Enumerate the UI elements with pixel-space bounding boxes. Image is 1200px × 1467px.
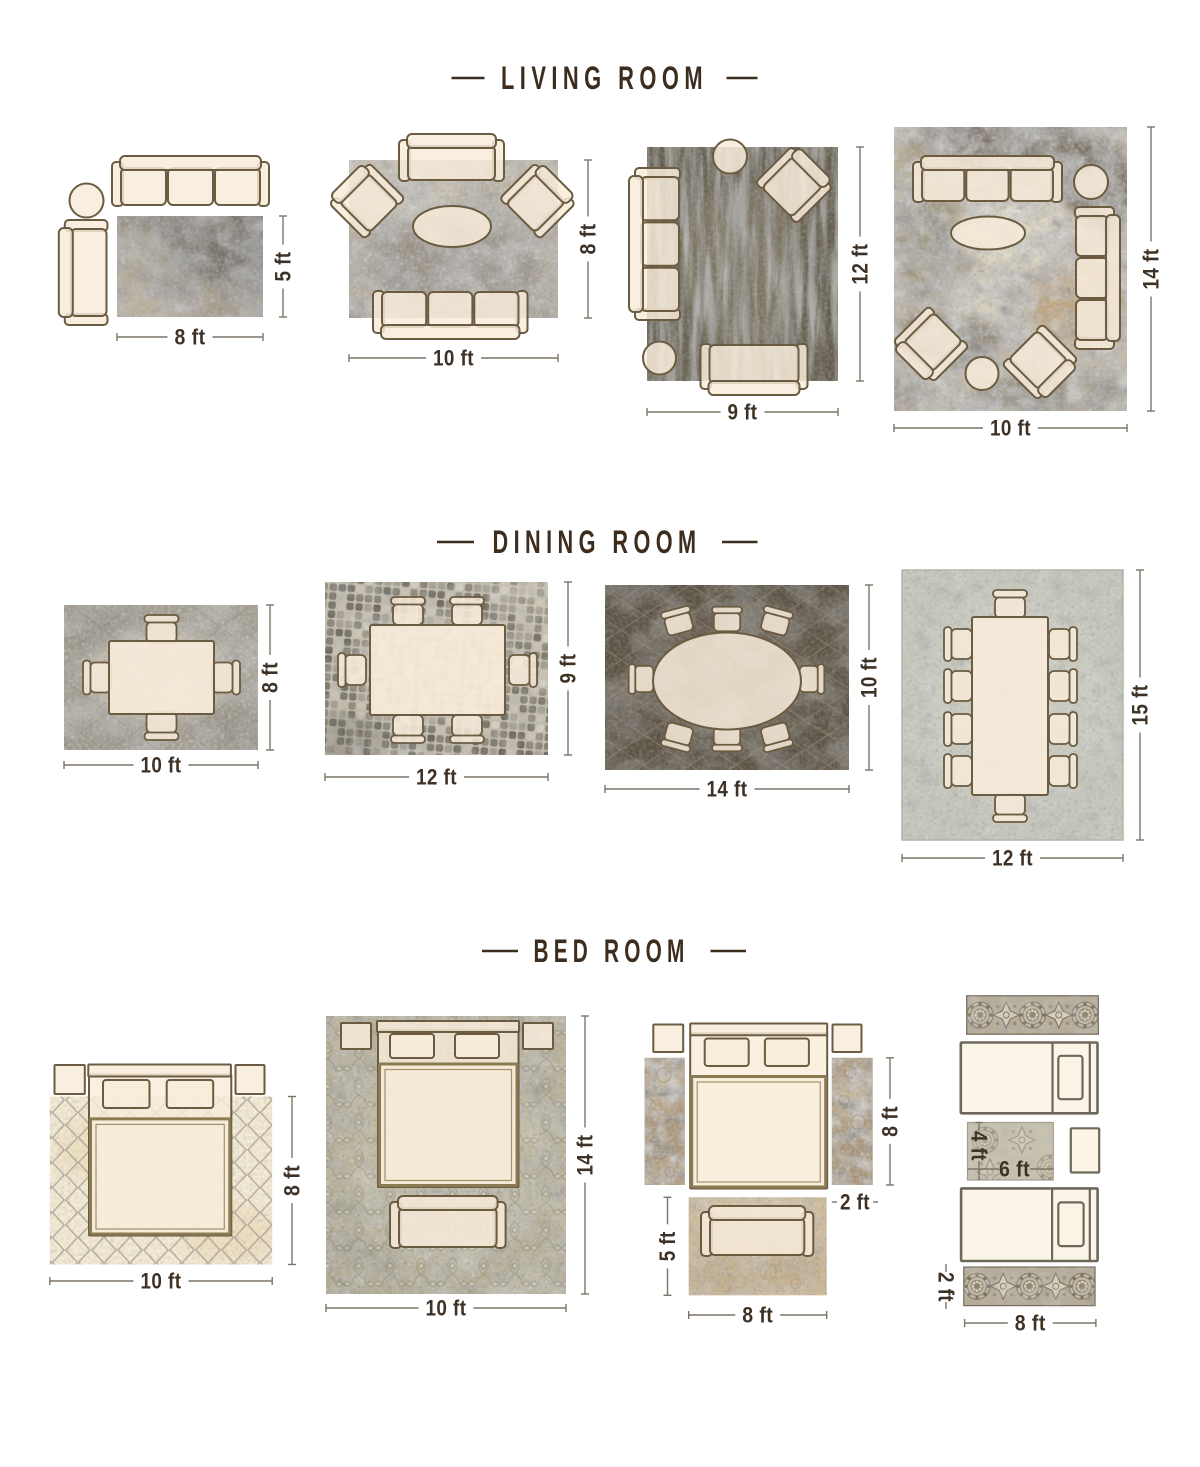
svg-text:DINING ROOM: DINING ROOM (493, 524, 702, 560)
svg-text:2 ft: 2 ft (934, 1272, 959, 1302)
svg-text:15 ft: 15 ft (1128, 684, 1153, 725)
svg-text:9 ft: 9 ft (728, 400, 758, 425)
svg-text:8 ft: 8 ft (742, 1303, 773, 1328)
svg-text:10 ft: 10 ft (141, 753, 182, 778)
svg-text:12 ft: 12 ft (848, 243, 873, 284)
svg-text:6 ft: 6 ft (999, 1157, 1030, 1182)
svg-text:12 ft: 12 ft (416, 765, 457, 790)
svg-text:10 ft: 10 ft (141, 1269, 182, 1294)
svg-text:8 ft: 8 ft (878, 1106, 903, 1137)
svg-text:8 ft: 8 ft (280, 1165, 305, 1196)
svg-text:4 ft: 4 ft (967, 1131, 992, 1161)
svg-text:8 ft: 8 ft (258, 662, 283, 693)
svg-text:8 ft: 8 ft (1015, 1311, 1046, 1336)
svg-text:14 ft: 14 ft (573, 1134, 598, 1175)
svg-text:5 ft: 5 ft (655, 1231, 680, 1261)
svg-text:10 ft: 10 ft (433, 346, 474, 371)
svg-text:12 ft: 12 ft (992, 846, 1033, 871)
svg-text:LIVING ROOM: LIVING ROOM (501, 60, 708, 96)
svg-text:2 ft: 2 ft (840, 1190, 870, 1215)
svg-text:9 ft: 9 ft (556, 653, 581, 683)
svg-text:10 ft: 10 ft (426, 1296, 467, 1321)
svg-text:5 ft: 5 ft (271, 251, 296, 281)
svg-text:14 ft: 14 ft (707, 777, 748, 802)
svg-text:10 ft: 10 ft (990, 416, 1031, 441)
svg-text:14 ft: 14 ft (1139, 248, 1164, 289)
svg-text:8 ft: 8 ft (576, 223, 601, 254)
svg-text:10 ft: 10 ft (857, 657, 882, 698)
svg-text:8 ft: 8 ft (175, 325, 206, 350)
svg-text:BED ROOM: BED ROOM (534, 933, 690, 969)
